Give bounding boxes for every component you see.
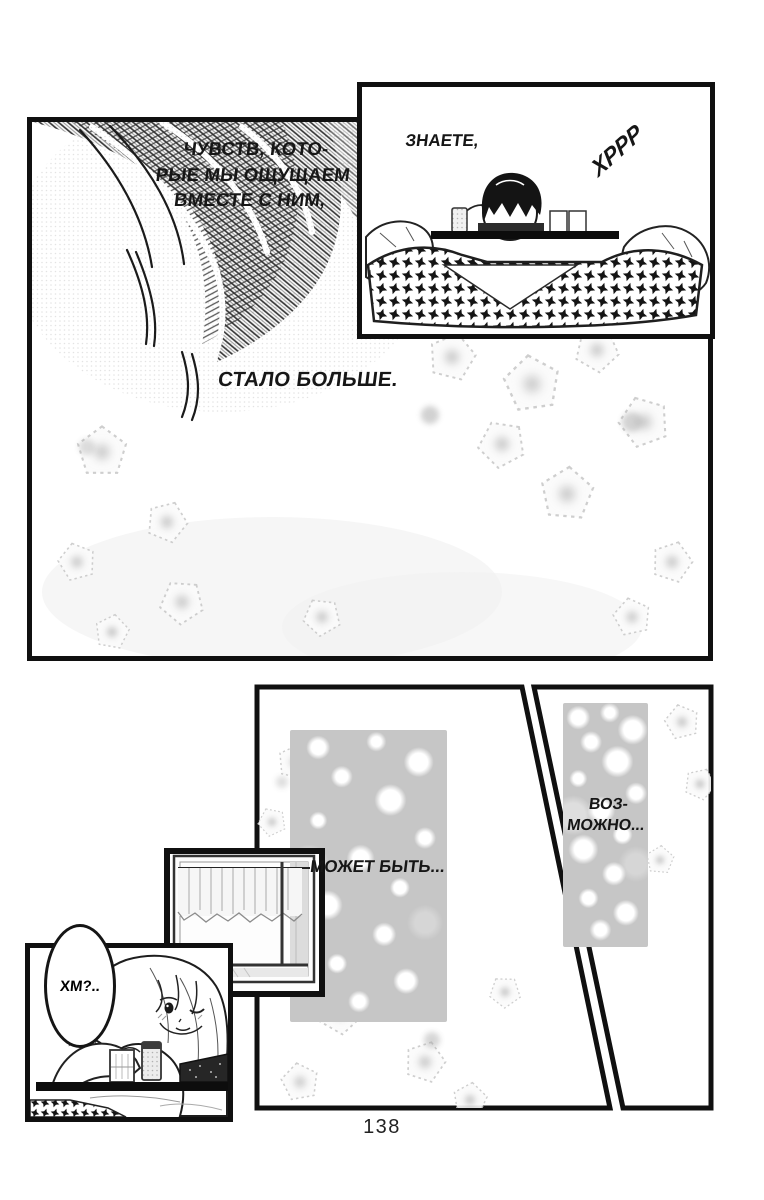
caption-possibly-line: ВОЗ- bbox=[563, 795, 654, 816]
manga-page: ЧУВСТВ, КОТО- РЫЕ МЫ ОЩУЩАЕМ ВМЕСТЕ С НИ… bbox=[0, 0, 764, 1200]
narration-line: РЫЕ МЫ ОЩУЩАЕМ bbox=[136, 162, 369, 188]
speech-bubble-text: ХМ?.. bbox=[59, 978, 100, 995]
panel-kotatsu: ЗНАЕТЕ, ХРРР bbox=[357, 82, 715, 339]
caption-maybe: МОЖЕТ БЫТЬ... bbox=[304, 857, 451, 877]
speech-znaete: ЗНАЕТЕ, bbox=[395, 131, 489, 151]
speech-bubble-girl: ХМ?.. bbox=[44, 924, 116, 1048]
narration-line: ВМЕСТЕ С НИМ, bbox=[133, 187, 366, 213]
caption-possibly-line: МОЖНО... bbox=[560, 816, 651, 837]
caption-possibly: ВОЗ- МОЖНО... bbox=[560, 795, 653, 837]
narration-caption: СТАЛО БОЛЬШЕ. bbox=[217, 368, 400, 392]
narration-box: ЧУВСТВ, КОТО- РЫЕ МЫ ОЩУЩАЕМ ВМЕСТЕ С НИ… bbox=[133, 136, 372, 213]
narration-line: ЧУВСТВ, КОТО- bbox=[140, 136, 373, 162]
